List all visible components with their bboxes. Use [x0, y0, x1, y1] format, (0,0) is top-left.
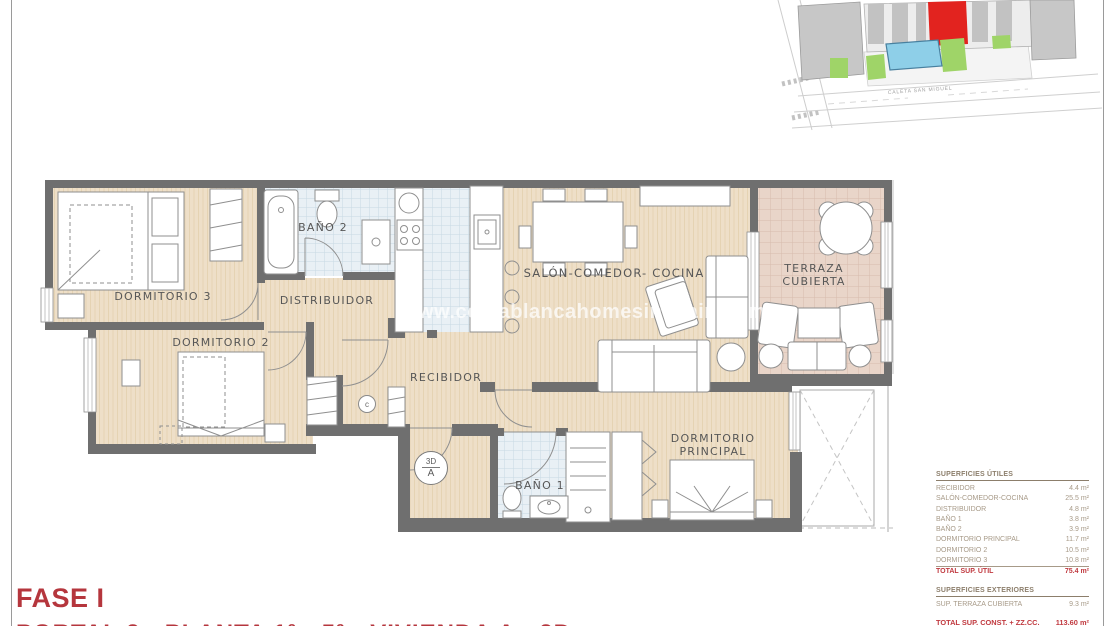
- area-value: 11.7 m²: [1066, 535, 1089, 545]
- area-label: TOTAL SUP. ÚTIL: [936, 567, 993, 577]
- marker-a-label: A: [428, 468, 435, 479]
- room-label-bano-2: BAÑO 2: [298, 221, 348, 234]
- area-value: 25.5 m²: [1065, 494, 1089, 504]
- area-label: BAÑO 1: [936, 515, 962, 525]
- room-label-dormitorio-3: DORMITORIO 3: [114, 290, 211, 303]
- area-row: SALÓN-COMEDOR-COCINA25.5 m²: [936, 494, 1089, 504]
- area-label: SUP. TERRAZA CUBIERTA: [936, 600, 1022, 610]
- room-label-dormitorio-principal: DORMITORIO PRINCIPAL: [671, 432, 755, 458]
- unit-title: PORTAL 2 - PLANTA 1ª - 5ª - VIVIENDA A -…: [16, 620, 572, 626]
- area-value: 3.9 m²: [1069, 525, 1089, 535]
- dorm-ppal-line2: PRINCIPAL: [671, 445, 755, 458]
- area-value: 10.8 m²: [1065, 556, 1089, 566]
- room-label-salon: SALÓN-COMEDOR- COCINA: [524, 267, 705, 280]
- closet-recibidor-icon: [388, 387, 405, 427]
- sofa-right-icon: [706, 256, 748, 338]
- area-row: BAÑO 23.9 m²: [936, 525, 1089, 535]
- wardrobe-dorm3-icon: [210, 189, 242, 261]
- area-label: SALÓN-COMEDOR-COCINA: [936, 494, 1028, 504]
- terrace-table-icon: [819, 202, 873, 255]
- street-label: CALETA SAN MIGUEL: [888, 86, 953, 96]
- pouf-icon: [717, 343, 745, 371]
- superficies-utiles-title: SUPERFICIES ÚTILES: [936, 471, 1089, 481]
- dorm-ppal-line1: DORMITORIO: [671, 432, 755, 445]
- closet-hall-icon: [307, 377, 337, 425]
- nightstand-icon: [58, 294, 84, 318]
- terrace-lounge-icon: [757, 302, 878, 370]
- pool-icon: [886, 40, 942, 70]
- terraza-line2: CUBIERTA: [782, 275, 845, 288]
- bed-principal-icon: [670, 460, 754, 520]
- bed-dorm2-icon: [178, 352, 264, 436]
- sideboard-icon: [640, 186, 730, 206]
- area-row: DORMITORIO 310.8 m²: [936, 556, 1089, 566]
- area-row: BAÑO 13.8 m²: [936, 515, 1089, 525]
- terraza-line1: TERRAZA: [782, 262, 845, 275]
- sofa-bottom-icon: [598, 340, 710, 392]
- room-label-terraza: TERRAZA CUBIERTA: [782, 262, 845, 288]
- area-value: 4.4 m²: [1069, 484, 1089, 494]
- bed-dorm3-icon: [58, 192, 184, 290]
- superficies-exteriores-title: SUPERFICIES EXTERIORES: [936, 587, 1089, 597]
- room-label-distribuidor: DISTRIBUIDOR: [280, 294, 374, 307]
- area-row: DISTRIBUIDOR4.8 m²: [936, 505, 1089, 515]
- building-block-right: [1030, 0, 1076, 60]
- view-3d-marker: 3D A: [414, 451, 448, 485]
- area-value: 9.3 m²: [1069, 600, 1089, 610]
- bathtub-icon: [264, 190, 298, 274]
- area-value: 3.8 m²: [1069, 515, 1089, 525]
- area-row: DORMITORIO PRINCIPAL11.7 m²: [936, 535, 1089, 545]
- site-plan: CALETA SAN MIGUEL: [778, 0, 1102, 130]
- marker-3d-label: 3D: [422, 457, 440, 468]
- area-label: DISTRIBUIDOR: [936, 505, 986, 515]
- area-row: DORMITORIO 210.5 m²: [936, 546, 1089, 556]
- area-value: 10.5 m²: [1065, 546, 1089, 556]
- area-label: TOTAL SUP. CONST. + ZZ.CC.: [936, 618, 1040, 626]
- area-label: DORMITORIO 2: [936, 546, 987, 556]
- area-label: DORMITORIO PRINCIPAL: [936, 535, 1020, 545]
- total-util-row: TOTAL SUP. ÚTIL75.4 m²: [936, 566, 1089, 577]
- total-const-row: TOTAL SUP. CONST. + ZZ.CC.113.60 m²: [936, 618, 1089, 626]
- phase-title: FASE I: [16, 583, 105, 614]
- shower-icon: [566, 432, 610, 522]
- floorplan-page: CALETA SAN MIGUEL www.costablancahomesin…: [0, 0, 1110, 626]
- area-row: RECIBIDOR4.4 m²: [936, 484, 1089, 494]
- room-label-recibidor: RECIBIDOR: [410, 371, 482, 384]
- area-label: DORMITORIO 3: [936, 556, 987, 566]
- vanity-bano1-icon: [530, 496, 568, 518]
- nightstand-icon: [652, 500, 668, 518]
- watermark: www.costablancahomesinspain.com: [402, 301, 766, 324]
- area-value: 75.4 m²: [1065, 567, 1089, 577]
- areas-table: SUPERFICIES ÚTILES RECIBIDOR4.4 m² SALÓN…: [936, 471, 1089, 626]
- area-value: 113.60 m²: [1056, 618, 1089, 626]
- sink-bano2-icon: [362, 220, 390, 264]
- desk-icon: [122, 360, 140, 386]
- area-label: BAÑO 2: [936, 525, 962, 535]
- area-row: SUP. TERRAZA CUBIERTA9.3 m²: [936, 600, 1089, 610]
- area-value: 4.8 m²: [1069, 505, 1089, 515]
- nightstand-icon: [265, 424, 285, 442]
- nightstand-icon: [756, 500, 772, 518]
- area-label: RECIBIDOR: [936, 484, 975, 494]
- room-label-bano-1: BAÑO 1: [515, 479, 565, 492]
- dining-table-icon: [519, 189, 637, 275]
- closet-marker: c: [358, 395, 376, 413]
- room-label-dormitorio-2: DORMITORIO 2: [172, 336, 269, 349]
